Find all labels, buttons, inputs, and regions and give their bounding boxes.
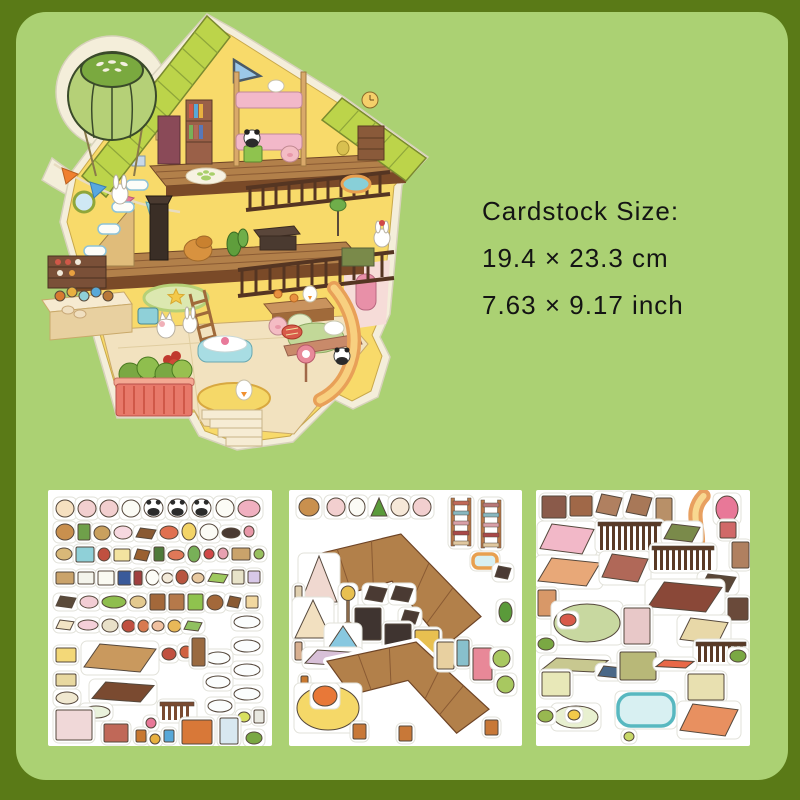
sticker-item <box>53 545 75 563</box>
sticker-item <box>165 547 187 563</box>
sticker-item <box>310 683 340 709</box>
sticker-item <box>685 671 727 703</box>
sticker-item <box>53 671 79 689</box>
sticker-item <box>75 521 93 543</box>
sticker-item <box>165 496 190 520</box>
sticker-item <box>95 568 117 588</box>
attic-cabinet <box>158 116 180 164</box>
size-imperial: 7.63 × 9.17 inch <box>482 282 684 329</box>
sticker-item <box>53 521 77 543</box>
sticker-item <box>181 618 205 634</box>
sticker-item <box>717 519 739 541</box>
sticker-item <box>388 495 412 519</box>
sticker-item <box>166 591 187 613</box>
sticker-item <box>231 661 263 679</box>
sticker-item <box>621 605 653 647</box>
sticker-item <box>149 618 167 634</box>
panda-on-slide <box>334 348 350 366</box>
pig-figure <box>281 146 299 162</box>
sticker-item <box>219 525 243 541</box>
sticker-item <box>490 647 513 670</box>
sticker-item <box>53 617 77 633</box>
sticker-item <box>565 707 583 723</box>
sticker-item <box>539 669 573 699</box>
sticker-sheet-furniture-canvas <box>536 490 750 746</box>
sticker-item <box>229 545 253 563</box>
bunny-on-bed <box>268 80 284 92</box>
star-rug <box>144 285 208 311</box>
sticker-item <box>99 593 129 611</box>
sticker-item <box>496 599 515 625</box>
sticker-item <box>350 721 369 742</box>
sticker-item <box>147 591 168 613</box>
sticker-item <box>653 657 697 671</box>
sticker-item <box>53 645 79 665</box>
sticker-item <box>593 491 625 519</box>
sticker-item <box>649 543 717 573</box>
hamster-cage <box>138 308 158 324</box>
sticker-item <box>53 689 81 707</box>
sticker-item <box>621 729 637 744</box>
sticker-item <box>157 523 181 542</box>
sticker-item <box>231 637 263 655</box>
sticker-item <box>661 521 703 545</box>
sticker-item <box>235 497 263 520</box>
attic-drawers <box>358 126 384 160</box>
sticker-item <box>189 570 207 586</box>
sticker-item <box>729 539 750 571</box>
attic-bookshelf <box>186 100 212 164</box>
sticker-item <box>539 493 569 521</box>
sticker-item <box>567 493 595 519</box>
sticker-item <box>536 707 556 725</box>
sticker-item <box>89 679 157 705</box>
size-title: Cardstock Size: <box>482 188 684 235</box>
sticker-item <box>454 637 472 669</box>
sticker-item <box>243 593 261 611</box>
sticker-item <box>492 563 514 582</box>
product-image: Cardstock Size: 19.4 × 23.3 cm 7.63 × 9.… <box>0 0 800 800</box>
sticker-sheet-floors-canvas <box>289 490 522 746</box>
sticker-item <box>81 641 159 675</box>
sticker-item <box>251 546 267 562</box>
sticker-item <box>213 496 237 520</box>
sticker-sheet-decor-canvas <box>48 490 272 746</box>
sticker-item <box>101 721 131 745</box>
sticker-item <box>727 647 749 665</box>
sticker-item <box>241 523 257 540</box>
paw-rug <box>186 168 226 184</box>
sticker-item <box>224 593 244 611</box>
sticker-item <box>141 496 166 520</box>
sticker-sheet-floors <box>289 490 522 746</box>
sticker-item <box>75 497 99 520</box>
sticker-item <box>205 697 235 715</box>
gourd <box>337 141 349 155</box>
sticker-item <box>536 635 557 653</box>
sticker-item <box>77 593 101 611</box>
sticker-item <box>189 496 214 520</box>
sticker-item <box>296 495 322 519</box>
sticker-item <box>111 546 133 564</box>
pet-pool <box>342 176 370 192</box>
sticker-item <box>396 723 415 744</box>
sticker-item <box>111 523 135 542</box>
cardstock-size-info: Cardstock Size: 19.4 × 23.3 cm 7.63 × 9.… <box>482 188 684 329</box>
flower-planter <box>114 357 194 416</box>
sticker-item <box>179 520 199 543</box>
sticker-item <box>95 545 113 564</box>
kitchen-shelf <box>48 256 106 288</box>
sticker-item <box>203 673 233 691</box>
sticker-item <box>410 495 434 519</box>
sticker-item <box>159 645 179 663</box>
panda-on-chair <box>244 129 262 162</box>
sticker-item <box>53 497 77 520</box>
kitchen-counter <box>42 287 132 340</box>
sticker-item <box>119 497 143 520</box>
sticker-item <box>205 570 231 586</box>
sticker-item <box>251 707 267 726</box>
rabbit-right <box>374 220 390 247</box>
sticker-item <box>368 495 390 519</box>
sticker-sheet-decor <box>48 490 272 746</box>
sticker-item <box>623 491 655 519</box>
sticker-item <box>245 568 263 586</box>
sticker-item <box>185 543 203 565</box>
stove-chimney <box>146 196 172 260</box>
sticker-item <box>494 673 517 696</box>
sticker-item <box>217 715 241 746</box>
sticker-item <box>482 717 501 738</box>
sticker-item <box>231 685 263 703</box>
sticker-item <box>173 567 191 587</box>
sticker-item <box>197 521 221 543</box>
sticker-item <box>557 611 579 629</box>
sticker-item <box>677 701 741 739</box>
sticker-item <box>324 495 348 519</box>
sticker-item <box>229 567 247 587</box>
sticker-item <box>478 497 504 551</box>
green-cabinet <box>342 248 374 266</box>
sticker-item <box>161 727 177 745</box>
sticker-item <box>97 497 121 520</box>
size-metric: 19.4 × 23.3 cm <box>482 235 684 282</box>
sticker-item <box>91 523 113 543</box>
sticker-item <box>536 555 603 589</box>
sticker-item <box>537 521 597 557</box>
sticker-item <box>133 525 159 542</box>
wall-clock <box>362 92 378 108</box>
sticker-item <box>362 583 390 605</box>
sticker-item <box>53 707 95 743</box>
sticker-item <box>615 691 677 729</box>
sticker-item <box>185 591 206 613</box>
sticker-item <box>75 569 97 587</box>
sticker-item <box>75 617 101 633</box>
sticker-item <box>346 495 368 519</box>
dark-desk <box>254 226 300 250</box>
sticker-item <box>53 593 79 611</box>
sticker-item <box>204 592 226 613</box>
sticker-sheet-furniture <box>536 490 750 746</box>
sticker-item <box>388 583 416 605</box>
kotatsu-table <box>198 336 252 362</box>
sticker-item <box>448 495 474 549</box>
sticker-item <box>599 551 651 585</box>
sticker-item <box>53 569 77 587</box>
sticker-item <box>131 546 153 564</box>
sticker-item <box>73 544 97 565</box>
sticker-item <box>243 729 265 746</box>
sticker-item <box>645 579 725 615</box>
dollhouse-sticker-illustration <box>38 8 438 458</box>
sticker-item <box>127 593 149 611</box>
sticker-item <box>189 635 208 669</box>
sticker-item <box>231 613 263 631</box>
sticker-item <box>179 717 215 746</box>
sticker-item <box>99 616 121 635</box>
